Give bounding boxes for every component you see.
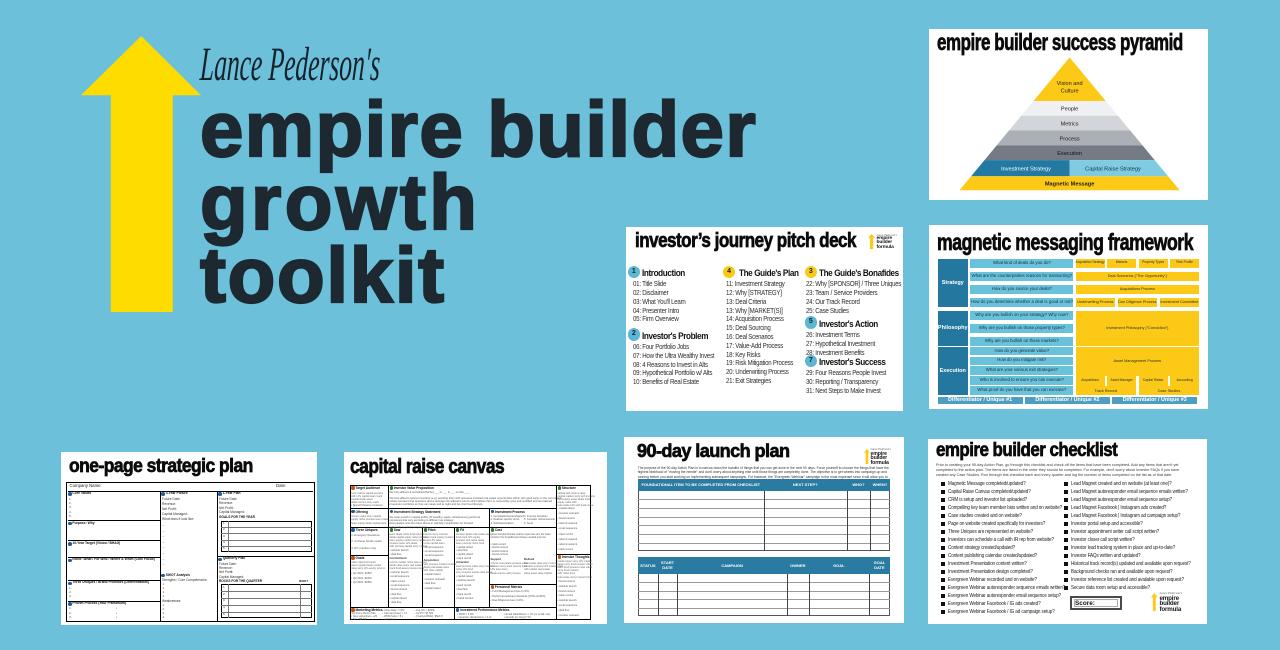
svg-text:Capital Raise Strategy: Capital Raise Strategy (1085, 167, 1141, 173)
svg-text:Execution: Execution (1057, 151, 1082, 157)
svg-text:Investment Strategy: Investment Strategy (1001, 167, 1051, 173)
svg-text:Magnetic Message: Magnetic Message (1045, 182, 1094, 188)
svg-text:Culture: Culture (1061, 89, 1079, 95)
svg-text:Metrics: Metrics (1061, 122, 1079, 128)
svg-text:People: People (1061, 107, 1078, 113)
svg-text:Vision and: Vision and (1057, 81, 1083, 87)
svg-text:Process: Process (1059, 137, 1079, 143)
